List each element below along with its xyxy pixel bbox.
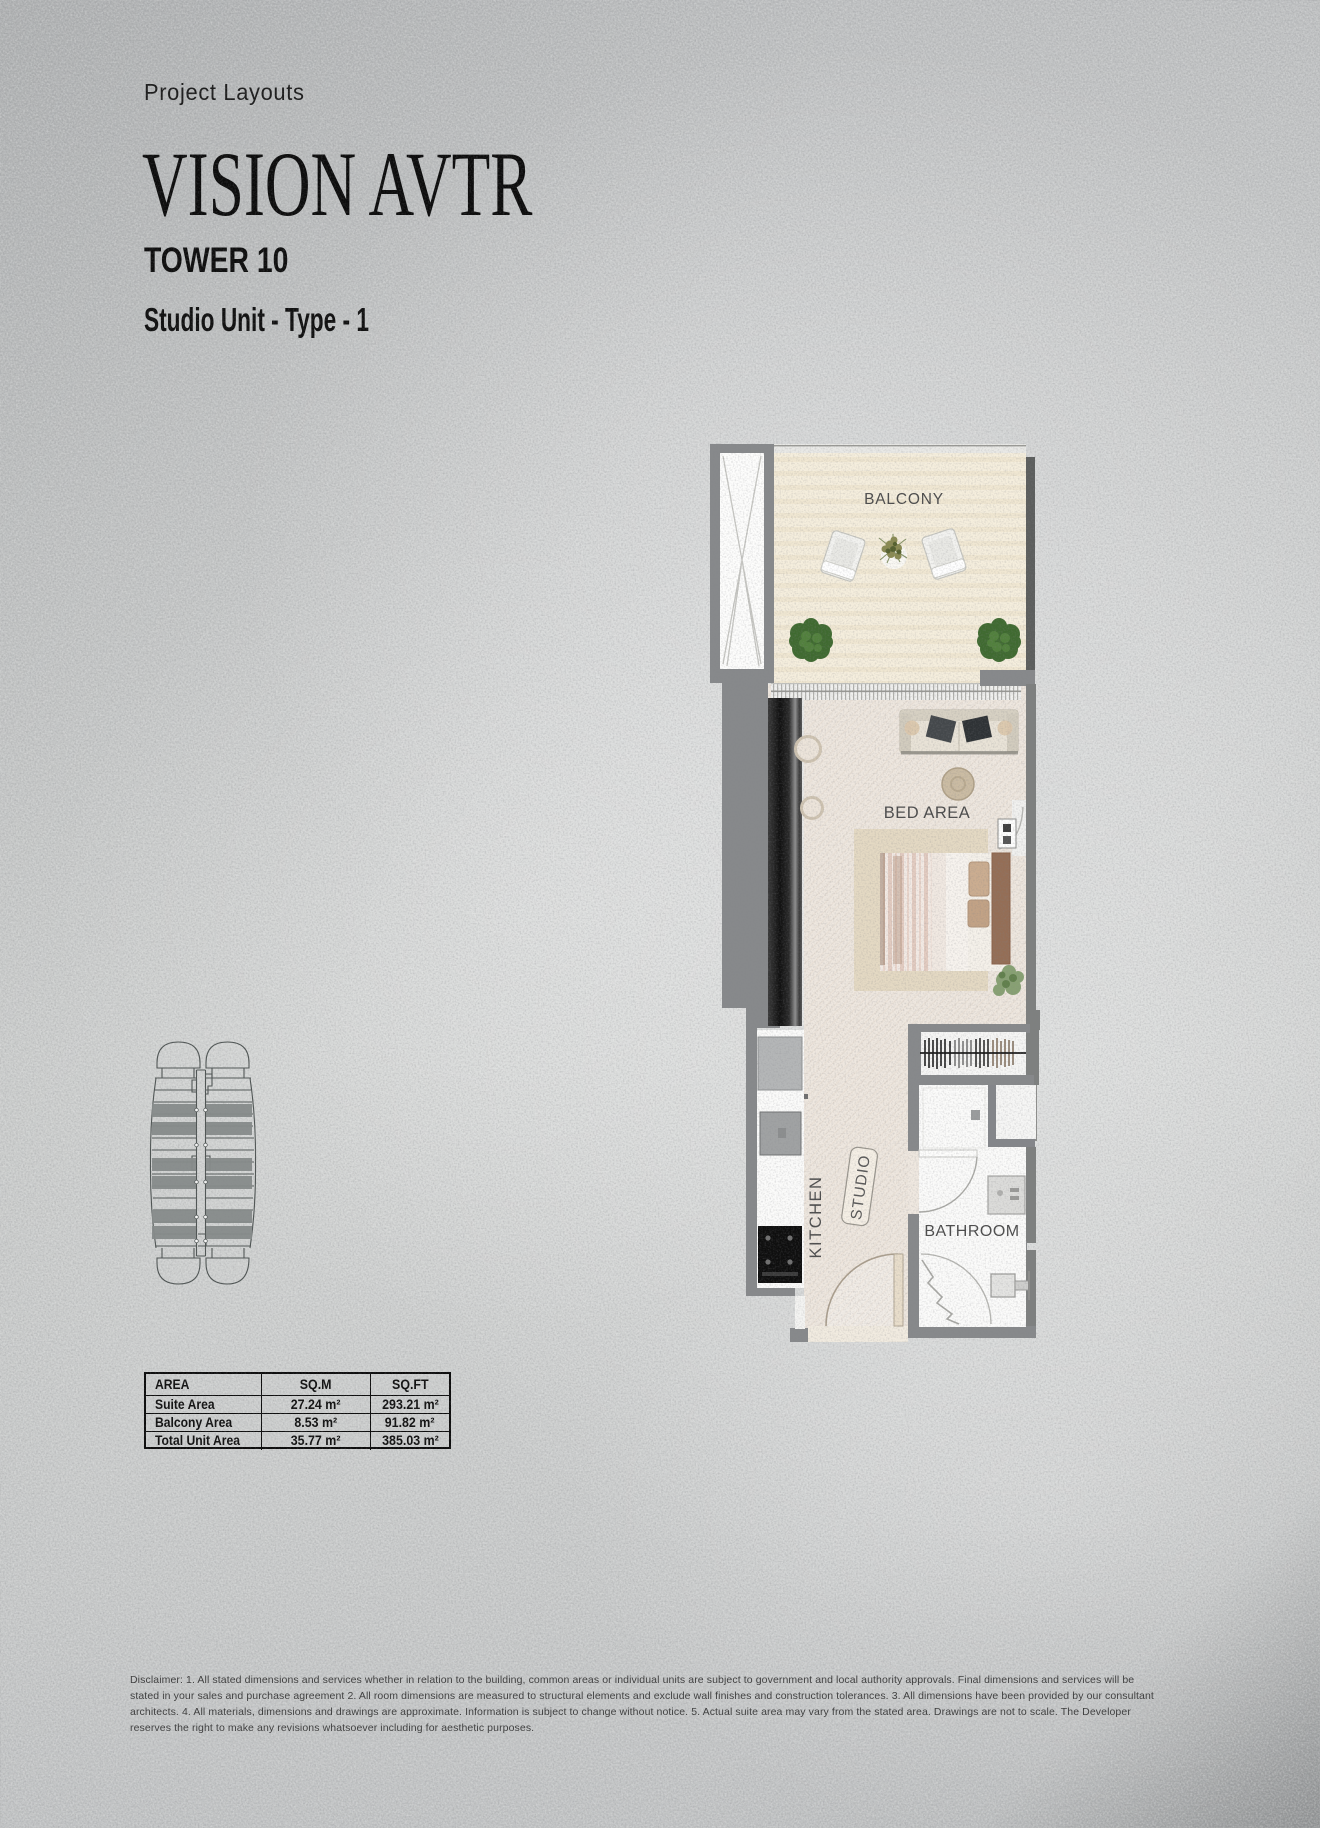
svg-text:KITCHEN: KITCHEN — [807, 1176, 825, 1259]
svg-text:BED AREA: BED AREA — [884, 804, 971, 822]
svg-text:BATHROOM: BATHROOM — [924, 1223, 1019, 1240]
svg-text:BALCONY: BALCONY — [864, 491, 944, 508]
